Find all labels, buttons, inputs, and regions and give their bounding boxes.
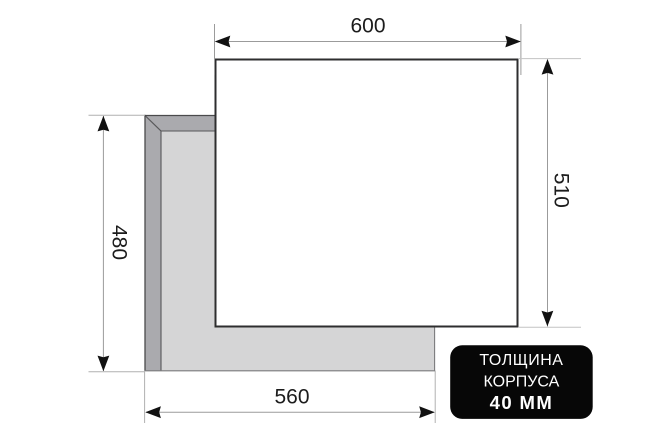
svg-text:КОРПУСА: КОРПУСА <box>484 374 560 391</box>
svg-text:510: 510 <box>549 173 572 208</box>
svg-text:560: 560 <box>274 386 309 409</box>
svg-text:ТОЛЩИНА: ТОЛЩИНА <box>479 352 563 369</box>
svg-text:600: 600 <box>350 15 385 38</box>
svg-text:40 ММ: 40 ММ <box>490 392 554 413</box>
svg-text:480: 480 <box>107 225 130 260</box>
